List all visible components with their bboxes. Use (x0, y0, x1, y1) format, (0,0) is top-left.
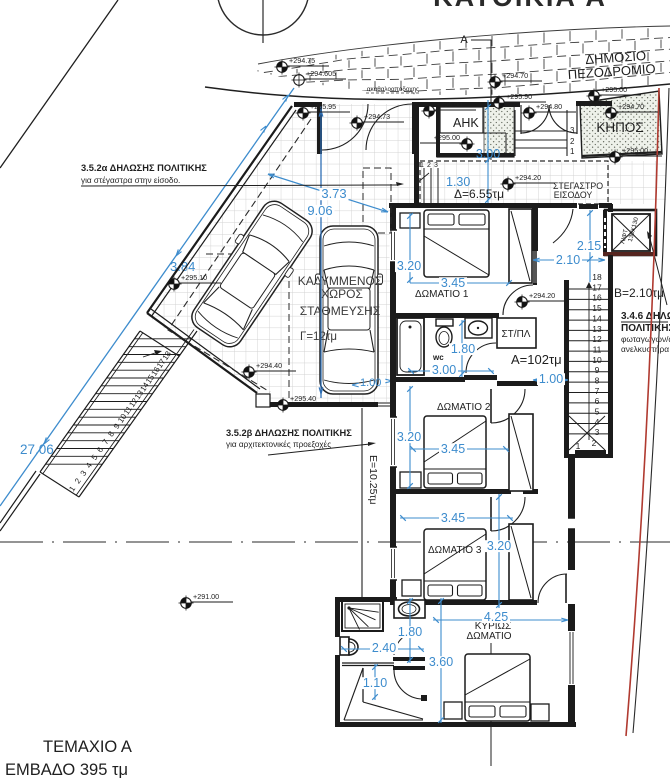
svg-text:7: 7 (595, 386, 600, 396)
svg-text:+295.90: +295.90 (506, 92, 532, 101)
svg-text:+294.70: +294.70 (502, 71, 528, 80)
svg-text:ανελκυστήρα: ανελκυστήρα (621, 344, 669, 354)
svg-text:1: 1 (576, 441, 581, 451)
svg-text:+295.00: +295.00 (601, 85, 627, 94)
svg-text:4.25: 4.25 (484, 610, 508, 624)
svg-text:16: 16 (592, 293, 602, 303)
svg-text:3.4.6 ΔΗΛΩ: 3.4.6 ΔΗΛΩ (621, 311, 670, 322)
svg-text:+291.00: +291.00 (193, 592, 219, 601)
svg-text:2: 2 (592, 438, 597, 448)
svg-text:+294.605: +294.605 (306, 69, 336, 78)
svg-text:ακαθαλοαποδοχης: ακαθαλοαποδοχης (367, 86, 419, 93)
svg-text:17: 17 (592, 282, 602, 292)
svg-text:3.20: 3.20 (397, 430, 421, 444)
svg-text:+295.10: +295.10 (181, 273, 207, 282)
svg-text:+295.00: +295.00 (622, 146, 648, 155)
svg-text:3.00: 3.00 (432, 363, 456, 377)
svg-text:5: 5 (595, 407, 600, 417)
svg-text:ΚΗΠΟΣ: ΚΗΠΟΣ (596, 120, 643, 135)
svg-text:18: 18 (592, 272, 602, 282)
svg-text:+295.00: +295.00 (434, 133, 460, 142)
svg-text:1: 1 (570, 147, 575, 156)
svg-text:1.10: 1.10 (363, 676, 387, 690)
svg-text:+294.73: +294.73 (364, 112, 390, 121)
svg-text:+294.80: +294.80 (536, 102, 562, 111)
svg-text:ΔΩΜΑΤΙΟ 2: ΔΩΜΑΤΙΟ 2 (437, 402, 491, 413)
svg-text:3: 3 (570, 126, 575, 135)
svg-text:ΤΕΜΑΧΙΟ Α: ΤΕΜΑΧΙΟ Α (43, 738, 132, 756)
svg-text:3.5.2α ΔΗΛΩΣΗΣ ΠΟΛΙΤΙΚΗΣ: 3.5.2α ΔΗΛΩΣΗΣ ΠΟΛΙΤΙΚΗΣ (81, 163, 207, 173)
svg-text:+295.95: +295.95 (310, 102, 336, 111)
svg-text:2.40: 2.40 (372, 641, 396, 655)
svg-text:15: 15 (592, 303, 602, 313)
svg-text:ΕΜΒΑΔΟ 395 τμ: ΕΜΒΑΔΟ 395 τμ (5, 761, 128, 779)
svg-text:ΣΤ/ΠΛ: ΣΤ/ΠΛ (502, 329, 531, 340)
svg-text:ΔΩΜΑΤΙΟ: ΔΩΜΑΤΙΟ (466, 631, 511, 642)
svg-text:2.15: 2.15 (577, 239, 601, 253)
svg-text:2.10: 2.10 (556, 253, 580, 267)
svg-text:3: 3 (434, 162, 438, 169)
svg-text:+294.70: +294.70 (618, 102, 644, 111)
svg-text:9.06: 9.06 (307, 203, 332, 218)
svg-text:3.20: 3.20 (397, 259, 421, 273)
svg-text:ΑΗΚ: ΑΗΚ (453, 116, 479, 130)
svg-text:1.00: 1.00 (539, 372, 563, 386)
svg-text:12: 12 (592, 334, 602, 344)
svg-text:1.80: 1.80 (398, 625, 422, 639)
svg-text:wc: wc (432, 353, 444, 362)
svg-text:3: 3 (595, 427, 600, 437)
svg-text:+294.20: +294.20 (529, 291, 555, 300)
svg-text:1.00: 1.00 (360, 377, 381, 389)
svg-text:3.20: 3.20 (487, 539, 511, 553)
svg-text:για στέγαστρα στην είσοδο.: για στέγαστρα στην είσοδο. (81, 176, 180, 185)
svg-text:3.00: 3.00 (476, 147, 500, 161)
svg-text:3.5.2β ΔΗΛΩΣΗΣ ΠΟΛΙΤΙΚΗΣ: 3.5.2β ΔΗΛΩΣΗΣ ΠΟΛΙΤΙΚΗΣ (226, 428, 352, 438)
svg-text:ΕΙΣΟΔΟΥ: ΕΙΣΟΔΟΥ (554, 190, 593, 200)
svg-text:4: 4 (595, 417, 600, 427)
svg-text:3.45: 3.45 (441, 276, 465, 290)
svg-text:ΚΑΤΟΙΚΙΑ Α: ΚΑΤΟΙΚΙΑ Α (433, 0, 607, 12)
svg-text:ΧΩΡΟΣ: ΧΩΡΟΣ (321, 287, 363, 301)
svg-text:+294.75: +294.75 (289, 56, 315, 65)
svg-text:3.73: 3.73 (321, 186, 346, 201)
svg-text:φωταγωγών/αν: φωταγωγών/αν (621, 334, 670, 344)
svg-text:+295.90: +295.90 (436, 100, 462, 109)
svg-text:6: 6 (595, 396, 600, 406)
svg-text:8: 8 (595, 376, 600, 386)
svg-text:ΣΤΑΘΜΕΥΣΗΣ: ΣΤΑΘΜΕΥΣΗΣ (300, 304, 380, 318)
svg-text:+294.40: +294.40 (256, 361, 282, 370)
svg-text:+294.20: +294.20 (515, 173, 541, 182)
svg-text:A: A (460, 34, 468, 46)
svg-text:9: 9 (595, 365, 600, 375)
svg-text:B=2.10τμ: B=2.10τμ (614, 286, 664, 300)
svg-text:Γ=12τμ: Γ=12τμ (300, 331, 337, 343)
svg-text:14: 14 (592, 313, 602, 323)
svg-text:Δ=6.55τμ: Δ=6.55τμ (454, 187, 504, 201)
svg-text:2: 2 (427, 162, 431, 169)
svg-text:ΠΟΛΙΤΙΚΗΣ: ΠΟΛΙΤΙΚΗΣ (621, 323, 670, 334)
svg-text:ΔΩΜΑΤΙΟ 3: ΔΩΜΑΤΙΟ 3 (428, 545, 482, 556)
svg-text:E=10.25τμ: E=10.25τμ (367, 455, 379, 505)
svg-text:13: 13 (592, 324, 602, 334)
svg-text:ΚΑΛΥΜΜΕΝΟΣ: ΚΑΛΥΜΜΕΝΟΣ (298, 274, 383, 288)
svg-text:3.60: 3.60 (429, 655, 453, 669)
svg-text:11: 11 (593, 344, 602, 354)
svg-text:27.06: 27.06 (20, 442, 54, 457)
svg-text:A=102τμ: A=102τμ (511, 352, 562, 367)
svg-text:1.80: 1.80 (451, 342, 475, 356)
svg-text:για αρχιτεκτονικές προεξοχές: για αρχιτεκτονικές προεξοχές (226, 440, 331, 449)
svg-text:10: 10 (592, 355, 602, 365)
svg-text:3.45: 3.45 (441, 511, 465, 525)
svg-text:2: 2 (570, 137, 575, 146)
svg-text:ΔΩΜΑΤΙΟ 1: ΔΩΜΑΤΙΟ 1 (415, 289, 469, 300)
svg-text:3.45: 3.45 (441, 442, 465, 456)
svg-text:+295.40: +295.40 (290, 394, 316, 403)
